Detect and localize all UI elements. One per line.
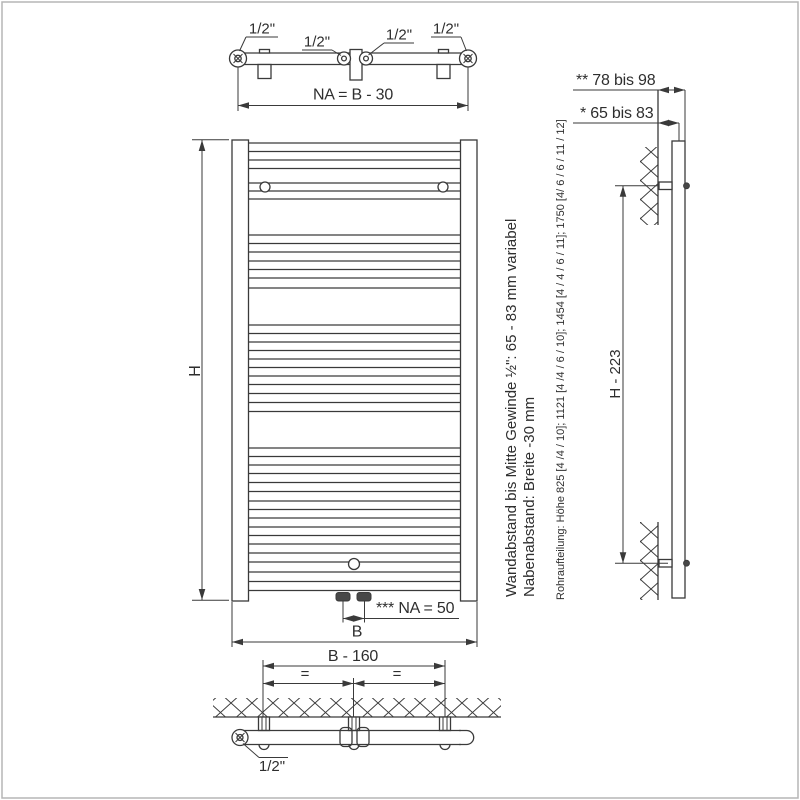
bottom-view: B - 160 = =: [213, 648, 501, 775]
wall-to-face-dimension: ** 78 bis 98: [573, 72, 685, 90]
wall-bracket: [440, 717, 451, 731]
notes: Wandabstand bis Mitte Gewinde ½": 65 - 8…: [503, 119, 567, 600]
bracket-span-dim-text: B - 160: [328, 648, 378, 665]
connection-size-label: 1/2": [386, 27, 412, 44]
connection-label-leader: 1/2": [369, 27, 415, 56]
towel-radiator-drawing: 1/2" 1/2" 1/2" 1/2" NA = B - 30: [0, 0, 800, 800]
hub-distance-note: Nabenabstand: Breite -30 mm: [521, 397, 538, 597]
wall-bracket: [259, 717, 270, 731]
wall-to-face-dim-text: ** 78 bis 98: [576, 72, 656, 89]
wall-bracket: [659, 182, 672, 190]
bottom-hub-dimension: *** NA = 50: [343, 600, 459, 623]
hub-distance-dim-text: NA = B - 30: [313, 87, 393, 104]
side-view: ** 78 bis 98 * 65 bis 83 H - 223: [573, 72, 690, 600]
connection-fitting: [230, 50, 247, 67]
connection-fitting: [460, 50, 477, 67]
equal-mark: =: [393, 666, 402, 683]
bracket-spacing-dimension: H - 223: [607, 186, 668, 563]
front-view: H *** NA = 50 B: [187, 140, 477, 647]
wall-to-center-dimension: * 65 bis 83: [573, 105, 679, 123]
bracket-clamp: [440, 745, 450, 750]
wall-hatch: [213, 698, 501, 717]
mounting-bracket: [258, 65, 271, 79]
connection-label-leader: 1/2": [302, 34, 341, 56]
wall-hatch: [640, 522, 658, 600]
connection-fitting: [232, 730, 248, 746]
connection-label-leader: 1/2": [240, 21, 279, 52]
connection-size-label: 1/2": [433, 21, 459, 38]
pipe-layout-note: Rohraufteilung: Höhe 825 [4 /4 / 10]; 11…: [555, 119, 567, 600]
radiator-profile: [672, 141, 685, 598]
height-dimension: H: [187, 140, 229, 601]
radiator-side-tube: [232, 140, 249, 601]
height-dim-text: H: [187, 365, 204, 376]
top-view: 1/2" 1/2" 1/2" 1/2" NA = B - 30: [230, 21, 477, 112]
wall-distance-note: Wandabstand bis Mitte Gewinde ½": 65 - 8…: [503, 219, 520, 597]
valve-connector: [357, 593, 371, 602]
connection-size-label: 1/2": [304, 34, 330, 51]
bottom-hub-dim-text: *** NA = 50: [376, 600, 455, 617]
mounting-bracket: [350, 50, 362, 81]
bracket-spacing-dim-text: H - 223: [607, 349, 624, 398]
bracket-bolt: [684, 560, 690, 566]
equal-mark: =: [301, 666, 310, 683]
connection-size-label: 1/2": [249, 21, 275, 38]
connection-label-leader: 1/2": [431, 21, 467, 52]
bracket-bolt: [684, 183, 690, 189]
wall-to-center-dim-text: * 65 bis 83: [580, 105, 654, 122]
mounting-hole: [260, 182, 270, 192]
end-cap: [459, 731, 474, 745]
radiator-side-tube: [461, 140, 478, 601]
mounting-bracket: [439, 50, 449, 54]
connection-size-label: 1/2": [259, 758, 285, 775]
mounting-hole: [349, 559, 360, 570]
mounting-bracket: [260, 50, 270, 54]
technical-drawing-page: 1/2" 1/2" 1/2" 1/2" NA = B - 30: [0, 0, 800, 800]
connection-label-leader: 1/2": [243, 744, 288, 776]
width-dim-text: B: [352, 624, 362, 641]
bracket-span-dimension: B - 160: [263, 648, 445, 666]
mounting-bracket: [437, 65, 450, 79]
valve-connector: [336, 593, 350, 602]
mounting-hole: [438, 182, 448, 192]
bracket-clamp: [259, 745, 269, 750]
connection-fitting: [338, 52, 351, 65]
towel-rail-tubes: [249, 143, 461, 591]
